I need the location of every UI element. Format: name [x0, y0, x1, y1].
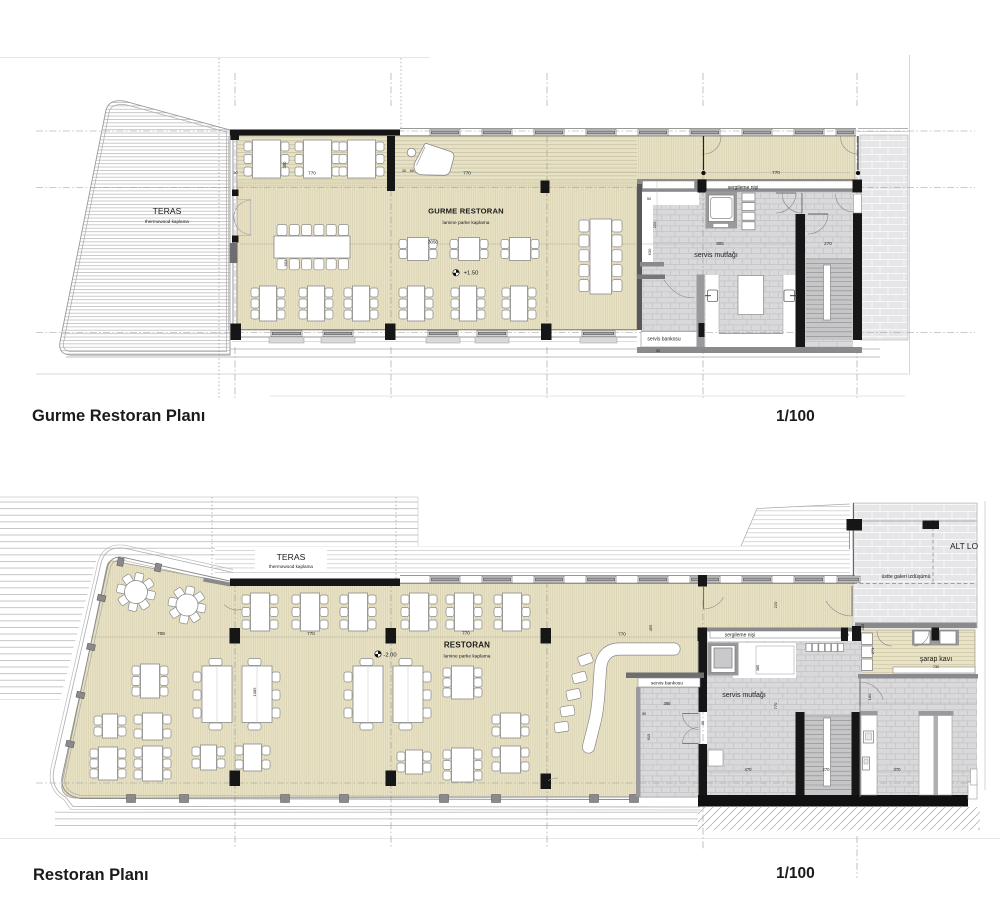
svg-text:385: 385 — [756, 665, 760, 671]
svg-text:730: 730 — [933, 665, 939, 669]
svg-text:-2.00: -2.00 — [383, 653, 396, 659]
svg-text:Gurme Restoran Planı: Gurme Restoran Planı — [32, 407, 205, 425]
svg-text:TERAS: TERAS — [277, 552, 306, 562]
svg-text:770: 770 — [308, 171, 316, 176]
svg-text:365: 365 — [664, 701, 672, 706]
svg-text:770: 770 — [618, 632, 626, 637]
svg-text:770: 770 — [773, 702, 778, 709]
svg-text:RESTORAN: RESTORAN — [444, 641, 490, 650]
svg-text:lamine parke kaplama: lamine parke kaplama — [444, 654, 491, 660]
svg-text:630: 630 — [647, 248, 652, 255]
svg-text:30: 30 — [699, 329, 703, 333]
svg-text:+1.50: +1.50 — [464, 271, 479, 277]
svg-text:thermowood kaplama: thermowood kaplama — [269, 564, 313, 569]
svg-text:220: 220 — [652, 221, 657, 228]
svg-text:603: 603 — [283, 259, 288, 266]
svg-text:770: 770 — [462, 631, 470, 636]
svg-text:ALT LO: ALT LO — [950, 541, 979, 551]
svg-text:30: 30 — [233, 171, 237, 175]
svg-text:TERAS: TERAS — [153, 206, 182, 216]
svg-text:30: 30 — [701, 721, 705, 725]
svg-text:30: 30 — [699, 758, 703, 762]
svg-text:370: 370 — [894, 767, 902, 772]
svg-text:lamine parke kaplama: lamine parke kaplama — [443, 220, 490, 226]
svg-text:servis mutfağı: servis mutfağı — [694, 252, 738, 259]
svg-text:300: 300 — [282, 161, 287, 169]
svg-text:1085: 1085 — [252, 687, 257, 697]
svg-text:üstte galeri izdüşümü: üstte galeri izdüşümü — [881, 574, 930, 580]
svg-text:60: 60 — [410, 169, 414, 173]
svg-text:servis mutfağı: servis mutfağı — [722, 692, 766, 699]
svg-text:708: 708 — [157, 631, 165, 636]
svg-text:sergileme nişi: sergileme nişi — [728, 185, 759, 191]
svg-text:3050: 3050 — [428, 240, 438, 245]
svg-text:50: 50 — [845, 633, 849, 637]
svg-text:805: 805 — [716, 241, 724, 246]
svg-text:1/100: 1/100 — [776, 865, 815, 882]
svg-text:30: 30 — [656, 349, 660, 353]
svg-text:30: 30 — [402, 169, 406, 173]
svg-text:servis bankosu: servis bankosu — [647, 337, 681, 343]
svg-text:770: 770 — [463, 171, 471, 176]
svg-text:470: 470 — [745, 767, 753, 772]
svg-text:180: 180 — [867, 693, 872, 700]
svg-text:şarap kavı: şarap kavı — [920, 656, 952, 663]
svg-text:770: 770 — [307, 631, 315, 636]
svg-text:1/100: 1/100 — [776, 408, 815, 425]
svg-text:615: 615 — [646, 733, 651, 740]
svg-text:270: 270 — [823, 767, 831, 772]
svg-text:GURME RESTORAN: GURME RESTORAN — [428, 207, 504, 216]
svg-text:165: 165 — [861, 624, 865, 630]
svg-text:273: 273 — [871, 648, 875, 654]
svg-text:sergileme nişi: sergileme nişi — [725, 633, 756, 639]
svg-text:50: 50 — [647, 197, 651, 201]
svg-text:Restoran Planı: Restoran Planı — [33, 866, 149, 884]
svg-text:servis bankosu: servis bankosu — [651, 681, 683, 687]
svg-text:thermowood kaplama: thermowood kaplama — [145, 219, 189, 224]
svg-text:270: 270 — [824, 241, 832, 246]
svg-text:30: 30 — [388, 171, 392, 175]
svg-text:455: 455 — [648, 624, 653, 631]
svg-text:770: 770 — [772, 170, 780, 175]
svg-text:220: 220 — [773, 601, 778, 608]
svg-text:30: 30 — [642, 712, 646, 716]
